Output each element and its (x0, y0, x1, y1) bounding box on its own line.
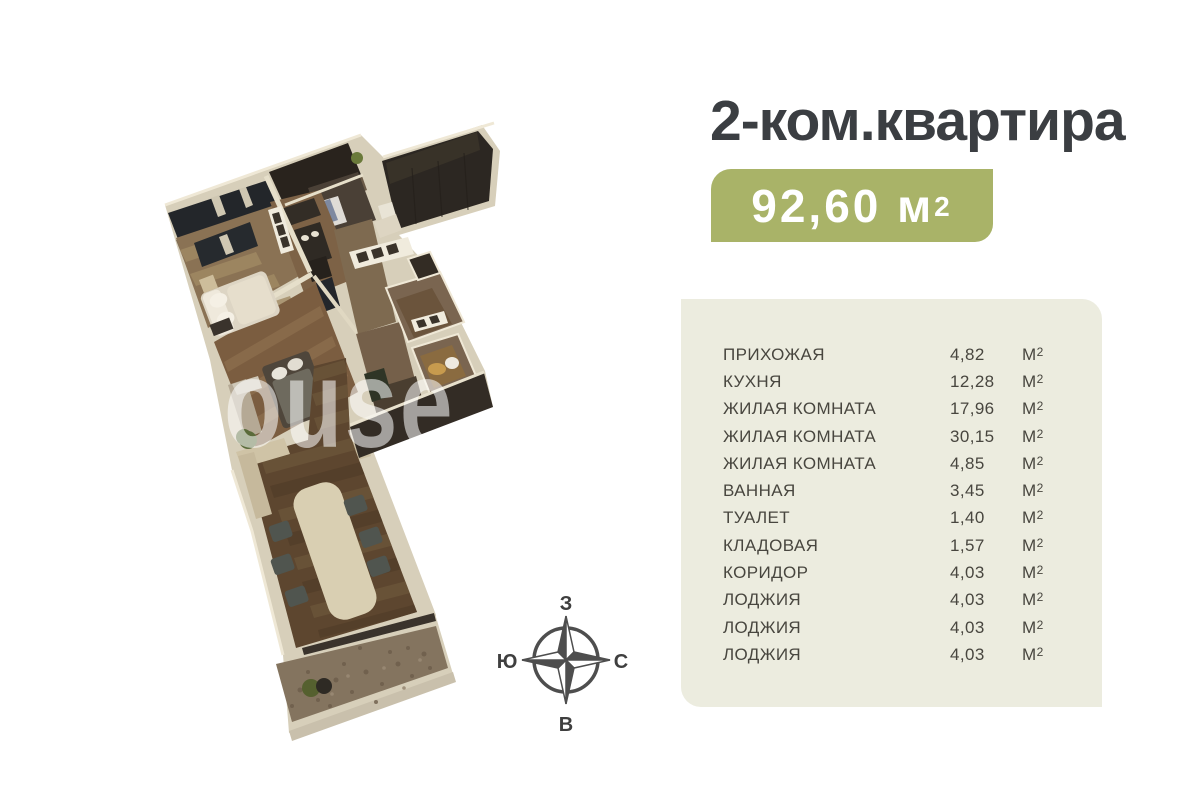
svg-text:ouse: ouse (224, 334, 455, 474)
svg-text:Ю: Ю (497, 651, 518, 673)
svg-text:З: З (560, 593, 573, 615)
svg-text:С: С (614, 651, 628, 673)
svg-text:В: В (559, 714, 573, 736)
